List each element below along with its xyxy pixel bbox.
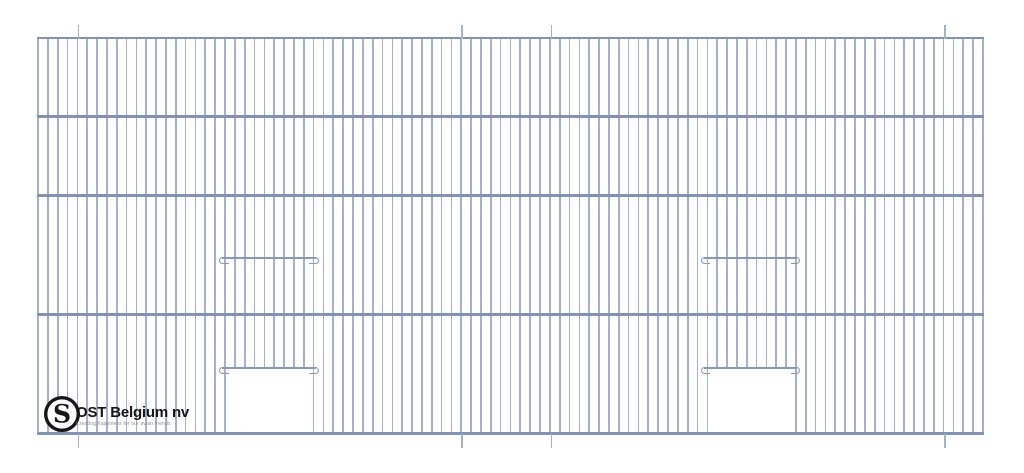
vertical-wire <box>500 37 502 435</box>
door-rail <box>704 367 798 369</box>
vertical-wire <box>667 37 669 435</box>
door-rail-hook-left <box>701 367 711 375</box>
door-rail <box>704 257 798 259</box>
vertical-wire <box>795 37 797 435</box>
vertical-wire <box>962 37 964 435</box>
vertical-wire <box>421 37 423 435</box>
door-rail-hook-right <box>791 257 801 265</box>
vertical-wire <box>204 37 206 435</box>
vertical-wire <box>175 37 177 435</box>
vertical-wire <box>382 37 384 435</box>
vertical-wire <box>834 37 836 435</box>
vertical-wire <box>864 37 866 435</box>
vertical-wire <box>332 37 334 435</box>
vertical-wire <box>96 37 98 435</box>
alignment-tick-bottom <box>461 434 462 448</box>
vertical-wire <box>77 37 79 435</box>
vertical-wire <box>510 37 512 435</box>
vertical-wire <box>145 37 147 435</box>
door-rail-hook-left <box>219 257 229 265</box>
vertical-wire <box>628 37 630 435</box>
logo-text-block: OST Belgium nv Creating happiness for ou… <box>76 394 189 427</box>
horizontal-bar <box>37 37 984 40</box>
vertical-wire <box>697 37 699 435</box>
vertical-wire <box>136 37 138 435</box>
vertical-wire <box>116 37 118 435</box>
vertical-wire <box>588 37 590 435</box>
vertical-wire <box>815 37 817 435</box>
door-rail <box>222 257 316 259</box>
vertical-wire <box>37 37 39 435</box>
vertical-wire <box>451 37 453 435</box>
alignment-tick-top <box>78 25 79 39</box>
door-rail-hook-left <box>219 367 229 375</box>
vertical-wire <box>894 37 896 435</box>
alignment-tick-top <box>944 25 945 39</box>
door-rail <box>222 367 316 369</box>
door-rail-hook-right <box>309 367 319 375</box>
vertical-wire <box>441 37 443 435</box>
vertical-wire <box>352 37 354 435</box>
horizontal-bar <box>37 194 984 197</box>
vertical-wire <box>923 37 925 435</box>
vertical-wire <box>953 37 955 435</box>
vertical-wire <box>559 37 561 435</box>
door-rail-hook-right <box>309 257 319 265</box>
vertical-wire <box>677 37 679 435</box>
vertical-wire <box>195 37 197 435</box>
vertical-wire <box>86 37 88 435</box>
vertical-wire <box>342 37 344 435</box>
vertical-wire <box>569 37 571 435</box>
vertical-wire <box>539 37 541 435</box>
vertical-wire <box>460 37 462 435</box>
vertical-wire <box>490 37 492 435</box>
alignment-tick-bottom <box>944 434 945 448</box>
vertical-wire <box>638 37 640 435</box>
vertical-wire <box>47 37 49 435</box>
cage-front-drawing: S OST Belgium nv Creating happiness for … <box>0 0 1024 473</box>
door-opening <box>709 369 796 432</box>
alignment-tick-top <box>461 25 462 39</box>
vertical-wire <box>67 37 69 435</box>
vertical-wire <box>470 37 472 435</box>
vertical-wire <box>982 37 984 435</box>
vertical-wire <box>854 37 856 435</box>
vertical-wire <box>529 37 531 435</box>
vertical-wire <box>165 37 167 435</box>
door-opening <box>226 369 313 432</box>
logo-tagline: Creating happiness for our avian friends <box>76 422 189 427</box>
alignment-tick-bottom <box>78 434 79 448</box>
vertical-wire <box>884 37 886 435</box>
vertical-wire <box>657 37 659 435</box>
vertical-wire <box>608 37 610 435</box>
logo: S OST Belgium nv Creating happiness for … <box>42 394 189 434</box>
vertical-wire <box>844 37 846 435</box>
vertical-wire <box>126 37 128 435</box>
vertical-wire <box>480 37 482 435</box>
vertical-wire <box>313 37 315 435</box>
vertical-wire <box>214 37 216 435</box>
vertical-wire <box>874 37 876 435</box>
vertical-wire <box>972 37 974 435</box>
vertical-wire <box>579 37 581 435</box>
vertical-wire <box>106 37 108 435</box>
vertical-wire <box>913 37 915 435</box>
vertical-wire <box>825 37 827 435</box>
vertical-wire <box>549 37 551 435</box>
vertical-wire <box>903 37 905 435</box>
vertical-wire <box>155 37 157 435</box>
vertical-wire <box>372 37 374 435</box>
vertical-wire <box>431 37 433 435</box>
vertical-wire <box>362 37 364 435</box>
vertical-wire <box>598 37 600 435</box>
vertical-wire <box>401 37 403 435</box>
logo-letter: S <box>53 400 71 429</box>
vertical-wire <box>943 37 945 435</box>
vertical-wire <box>933 37 935 435</box>
vertical-wire <box>687 37 689 435</box>
alignment-tick-top <box>551 25 552 39</box>
vertical-wire <box>618 37 620 435</box>
vertical-wire <box>805 37 807 435</box>
door-rail-hook-left <box>701 257 711 265</box>
logo-company-name: OST Belgium nv <box>76 405 189 420</box>
door-rail-hook-right <box>791 367 801 375</box>
vertical-wire <box>392 37 394 435</box>
vertical-wire <box>57 37 59 435</box>
vertical-wire <box>323 37 325 435</box>
alignment-tick-bottom <box>551 434 552 448</box>
vertical-wire <box>185 37 187 435</box>
vertical-wire <box>411 37 413 435</box>
vertical-wire <box>647 37 649 435</box>
horizontal-bar <box>37 115 984 118</box>
horizontal-bar <box>37 313 984 316</box>
vertical-wire <box>519 37 521 435</box>
